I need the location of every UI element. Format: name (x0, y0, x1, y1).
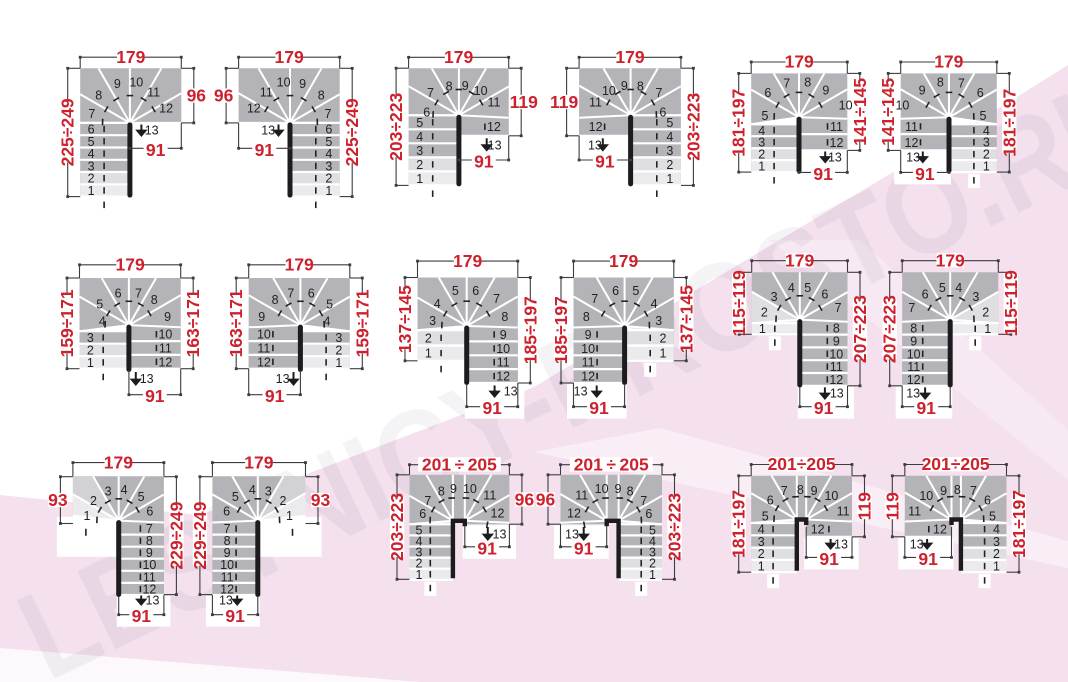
svg-text:12: 12 (830, 136, 844, 150)
svg-text:115÷119: 115÷119 (1001, 270, 1021, 336)
svg-text:91: 91 (146, 140, 166, 160)
svg-text:8: 8 (937, 75, 944, 89)
svg-text:8: 8 (501, 310, 508, 324)
svg-text:6: 6 (984, 494, 991, 508)
svg-text:7: 7 (783, 76, 790, 90)
svg-text:4: 4 (324, 315, 331, 329)
svg-text:179: 179 (116, 47, 145, 67)
svg-text:119: 119 (510, 92, 538, 112)
svg-text:1: 1 (660, 347, 667, 361)
svg-text:11: 11 (488, 96, 501, 110)
svg-text:96: 96 (515, 490, 535, 510)
svg-text:11: 11 (147, 86, 160, 100)
svg-text:91: 91 (225, 606, 245, 626)
svg-text:11: 11 (908, 505, 921, 519)
svg-text:11: 11 (260, 86, 273, 100)
svg-text:12: 12 (159, 101, 173, 115)
svg-text:11: 11 (159, 342, 172, 356)
svg-text:11: 11 (837, 505, 850, 519)
svg-text:7: 7 (424, 494, 431, 508)
svg-text:91: 91 (474, 152, 494, 172)
svg-text:4: 4 (121, 483, 128, 497)
svg-text:115÷119: 115÷119 (729, 270, 749, 336)
svg-text:179: 179 (444, 47, 473, 67)
svg-text:11: 11 (483, 488, 496, 502)
svg-text:119: 119 (550, 92, 578, 112)
svg-text:9: 9 (164, 310, 171, 324)
svg-text:8: 8 (804, 75, 811, 89)
svg-text:12: 12 (257, 355, 271, 369)
svg-text:203÷223: 203÷223 (387, 493, 407, 561)
svg-text:7: 7 (427, 86, 434, 100)
svg-text:5: 5 (452, 284, 459, 298)
svg-text:8: 8 (438, 485, 445, 499)
svg-text:5: 5 (416, 116, 423, 130)
svg-text:163÷171: 163÷171 (226, 289, 246, 357)
svg-text:10: 10 (581, 342, 595, 356)
svg-text:91: 91 (918, 549, 938, 569)
svg-text:6: 6 (821, 288, 828, 302)
svg-text:12: 12 (811, 523, 825, 537)
svg-text:141÷145: 141÷145 (878, 78, 898, 146)
svg-text:7: 7 (493, 292, 500, 306)
svg-text:9: 9 (615, 482, 622, 496)
svg-text:10: 10 (463, 482, 477, 496)
svg-text:181÷197: 181÷197 (1009, 490, 1029, 558)
svg-text:5: 5 (989, 509, 996, 523)
svg-text:179: 179 (274, 47, 303, 67)
svg-text:10: 10 (602, 84, 616, 98)
svg-text:10: 10 (595, 482, 609, 496)
svg-text:201÷205: 201÷205 (922, 454, 990, 474)
svg-text:3: 3 (771, 290, 778, 304)
svg-text:3: 3 (666, 144, 673, 158)
svg-text:4: 4 (651, 297, 658, 311)
svg-text:1: 1 (87, 356, 94, 370)
svg-text:11: 11 (830, 120, 843, 134)
svg-text:207÷223: 207÷223 (850, 295, 870, 363)
svg-text:5: 5 (804, 281, 811, 295)
svg-text:203÷223: 203÷223 (665, 493, 685, 561)
svg-text:13: 13 (828, 150, 842, 164)
svg-text:9: 9 (258, 310, 265, 324)
svg-text:13: 13 (906, 150, 920, 164)
svg-text:7: 7 (656, 86, 663, 100)
svg-text:203÷223: 203÷223 (386, 93, 406, 161)
svg-text:179: 179 (785, 52, 814, 72)
svg-text:1: 1 (335, 356, 342, 370)
svg-text:9: 9 (585, 328, 592, 342)
svg-text:4: 4 (666, 130, 673, 144)
svg-text:3: 3 (105, 485, 112, 499)
svg-text:5: 5 (326, 298, 333, 312)
svg-text:91: 91 (915, 164, 935, 184)
svg-text:1: 1 (88, 184, 95, 198)
svg-text:229÷249: 229÷249 (166, 501, 186, 569)
svg-text:2: 2 (660, 331, 667, 345)
svg-text:12: 12 (158, 355, 172, 369)
svg-text:11: 11 (575, 488, 588, 502)
svg-text:179: 179 (934, 52, 963, 72)
svg-text:5: 5 (666, 116, 673, 130)
svg-text:10: 10 (158, 328, 172, 342)
svg-text:7: 7 (781, 484, 788, 498)
svg-text:4: 4 (416, 130, 423, 144)
svg-text:7: 7 (591, 292, 598, 306)
svg-text:163÷171: 163÷171 (183, 289, 203, 357)
svg-text:179: 179 (453, 251, 482, 271)
svg-text:2: 2 (280, 494, 287, 508)
svg-text:5: 5 (138, 490, 145, 504)
svg-text:10: 10 (919, 489, 933, 503)
svg-text:6: 6 (922, 288, 929, 302)
svg-text:10: 10 (824, 489, 838, 503)
svg-text:7: 7 (135, 287, 142, 301)
svg-text:1: 1 (416, 172, 423, 186)
svg-text:1: 1 (84, 509, 91, 523)
svg-text:11: 11 (497, 356, 510, 370)
svg-text:3: 3 (429, 314, 436, 328)
svg-text:9: 9 (500, 328, 507, 342)
svg-text:12: 12 (907, 373, 921, 387)
svg-text:8: 8 (318, 89, 325, 103)
svg-text:185÷197: 185÷197 (551, 296, 571, 364)
svg-text:5: 5 (762, 109, 769, 123)
svg-text:8: 8 (95, 89, 102, 103)
svg-text:8: 8 (627, 485, 634, 499)
svg-text:1: 1 (983, 160, 990, 174)
svg-text:181÷197: 181÷197 (729, 89, 749, 157)
svg-text:8: 8 (583, 310, 590, 324)
svg-text:13: 13 (504, 384, 518, 398)
svg-text:96: 96 (187, 86, 207, 106)
svg-text:91: 91 (916, 398, 936, 418)
svg-text:91: 91 (574, 538, 594, 558)
svg-text:91: 91 (265, 386, 285, 406)
svg-text:6: 6 (419, 507, 426, 521)
svg-text:11: 11 (905, 120, 918, 134)
svg-text:5: 5 (939, 281, 946, 295)
svg-text:10: 10 (496, 342, 510, 356)
svg-text:181÷197: 181÷197 (729, 490, 749, 558)
svg-text:225÷249: 225÷249 (342, 98, 362, 166)
svg-text:9: 9 (114, 77, 121, 91)
svg-text:11: 11 (582, 356, 595, 370)
svg-text:1: 1 (984, 322, 991, 336)
svg-text:9: 9 (621, 79, 628, 93)
svg-text:11: 11 (257, 342, 270, 356)
svg-text:179: 179 (244, 452, 273, 472)
svg-text:5: 5 (980, 109, 987, 123)
svg-text:91: 91 (482, 398, 502, 418)
svg-text:2: 2 (425, 331, 432, 345)
svg-text:1: 1 (759, 322, 766, 336)
svg-text:13: 13 (140, 372, 154, 386)
svg-text:1: 1 (993, 560, 1000, 574)
svg-text:13: 13 (276, 372, 290, 386)
svg-text:96: 96 (536, 490, 556, 510)
svg-text:7: 7 (835, 301, 842, 315)
svg-text:5: 5 (632, 284, 639, 298)
svg-text:6: 6 (612, 284, 619, 298)
svg-text:229÷249: 229÷249 (190, 501, 210, 569)
svg-text:7: 7 (970, 484, 977, 498)
svg-text:9: 9 (940, 484, 947, 498)
svg-text:4: 4 (249, 483, 256, 497)
svg-text:9: 9 (450, 482, 457, 496)
svg-text:203÷223: 203÷223 (683, 93, 703, 161)
svg-text:10: 10 (129, 76, 143, 90)
svg-text:4: 4 (788, 281, 795, 295)
svg-text:93: 93 (311, 490, 331, 510)
svg-text:6: 6 (767, 494, 774, 508)
svg-text:7: 7 (958, 76, 965, 90)
svg-text:141÷145: 141÷145 (850, 78, 870, 146)
svg-text:8: 8 (637, 80, 644, 94)
svg-text:12: 12 (496, 370, 510, 384)
svg-text:3: 3 (655, 314, 662, 328)
svg-text:7: 7 (88, 107, 95, 121)
svg-text:137÷145: 137÷145 (395, 285, 415, 353)
svg-text:7: 7 (325, 107, 332, 121)
svg-text:1: 1 (286, 509, 293, 523)
svg-text:5: 5 (762, 509, 769, 523)
svg-text:6: 6 (423, 106, 430, 120)
svg-text:2: 2 (666, 158, 673, 172)
svg-text:179: 179 (936, 250, 965, 270)
svg-text:12: 12 (829, 373, 843, 387)
svg-text:185÷197: 185÷197 (520, 296, 540, 364)
svg-text:12: 12 (933, 523, 947, 537)
svg-text:179: 179 (785, 250, 814, 270)
svg-text:8: 8 (797, 483, 804, 497)
svg-text:6: 6 (645, 507, 652, 521)
svg-text:9: 9 (822, 83, 829, 97)
svg-text:3: 3 (972, 290, 979, 304)
svg-text:201÷205: 201÷205 (768, 454, 836, 474)
svg-text:4: 4 (99, 315, 106, 329)
svg-text:225÷249: 225÷249 (58, 98, 78, 166)
svg-text:8: 8 (272, 293, 279, 307)
svg-text:12: 12 (567, 506, 581, 520)
svg-text:91: 91 (819, 549, 839, 569)
svg-text:13: 13 (261, 123, 275, 137)
svg-text:8: 8 (954, 483, 961, 497)
svg-text:8: 8 (151, 293, 158, 307)
svg-text:207÷223: 207÷223 (880, 295, 900, 363)
svg-text:179: 179 (104, 452, 133, 472)
svg-text:2: 2 (90, 494, 97, 508)
svg-text:13: 13 (488, 139, 502, 153)
svg-text:91: 91 (255, 140, 275, 160)
svg-text:1: 1 (325, 184, 332, 198)
svg-text:8: 8 (446, 80, 453, 94)
svg-text:9: 9 (811, 484, 818, 498)
svg-text:12: 12 (247, 101, 261, 115)
svg-text:3: 3 (265, 485, 272, 499)
svg-text:6: 6 (977, 86, 984, 100)
svg-text:137÷145: 137÷145 (676, 285, 696, 353)
svg-text:91: 91 (595, 152, 615, 172)
svg-text:5: 5 (96, 298, 103, 312)
svg-text:1: 1 (416, 568, 423, 582)
svg-text:7: 7 (287, 287, 294, 301)
svg-text:9: 9 (299, 77, 306, 91)
svg-text:201 ÷ 205: 201 ÷ 205 (574, 454, 649, 474)
svg-text:2: 2 (982, 306, 989, 320)
svg-text:4: 4 (434, 297, 441, 311)
svg-text:9: 9 (462, 79, 469, 93)
svg-text:179: 179 (285, 255, 314, 275)
svg-text:12: 12 (487, 120, 501, 134)
svg-text:91: 91 (145, 386, 165, 406)
svg-text:1: 1 (649, 568, 656, 582)
svg-text:91: 91 (814, 398, 834, 418)
svg-text:13: 13 (574, 384, 588, 398)
svg-text:6: 6 (472, 284, 479, 298)
svg-text:13: 13 (588, 139, 602, 153)
svg-text:6: 6 (223, 504, 230, 518)
svg-text:2: 2 (416, 158, 423, 172)
svg-text:91: 91 (589, 398, 609, 418)
svg-text:7: 7 (640, 494, 647, 508)
svg-text:6: 6 (308, 287, 315, 301)
svg-text:201 ÷ 205: 201 ÷ 205 (422, 454, 497, 474)
svg-text:96: 96 (214, 86, 234, 106)
svg-text:119: 119 (882, 492, 902, 520)
svg-text:6: 6 (115, 287, 122, 301)
svg-text:179: 179 (609, 251, 638, 271)
svg-text:5: 5 (232, 490, 239, 504)
svg-text:1: 1 (666, 172, 673, 186)
svg-text:91: 91 (132, 606, 152, 626)
svg-text:91: 91 (813, 164, 833, 184)
svg-text:13: 13 (145, 123, 159, 137)
svg-text:1: 1 (425, 347, 432, 361)
svg-text:181÷197: 181÷197 (999, 89, 1019, 157)
svg-text:159÷171: 159÷171 (57, 289, 77, 357)
svg-text:91: 91 (477, 538, 497, 558)
svg-text:159÷171: 159÷171 (352, 289, 372, 357)
svg-text:1: 1 (758, 560, 765, 574)
svg-text:7: 7 (908, 301, 915, 315)
svg-text:10: 10 (474, 84, 488, 98)
svg-text:179: 179 (115, 255, 144, 275)
svg-text:119: 119 (855, 492, 875, 520)
svg-text:6: 6 (146, 504, 153, 518)
svg-text:12: 12 (491, 506, 505, 520)
svg-text:6: 6 (764, 86, 771, 100)
svg-text:12: 12 (905, 136, 919, 150)
svg-text:9: 9 (919, 83, 926, 97)
svg-text:3: 3 (416, 144, 423, 158)
svg-text:4: 4 (955, 281, 962, 295)
svg-text:12: 12 (581, 370, 595, 384)
svg-text:6: 6 (659, 106, 666, 120)
svg-text:2: 2 (761, 306, 768, 320)
svg-text:12: 12 (589, 120, 603, 134)
svg-text:179: 179 (615, 47, 644, 67)
svg-text:1: 1 (758, 160, 765, 174)
svg-text:11: 11 (589, 96, 602, 110)
svg-text:10: 10 (257, 328, 271, 342)
svg-text:10: 10 (277, 76, 291, 90)
svg-text:93: 93 (48, 490, 68, 510)
